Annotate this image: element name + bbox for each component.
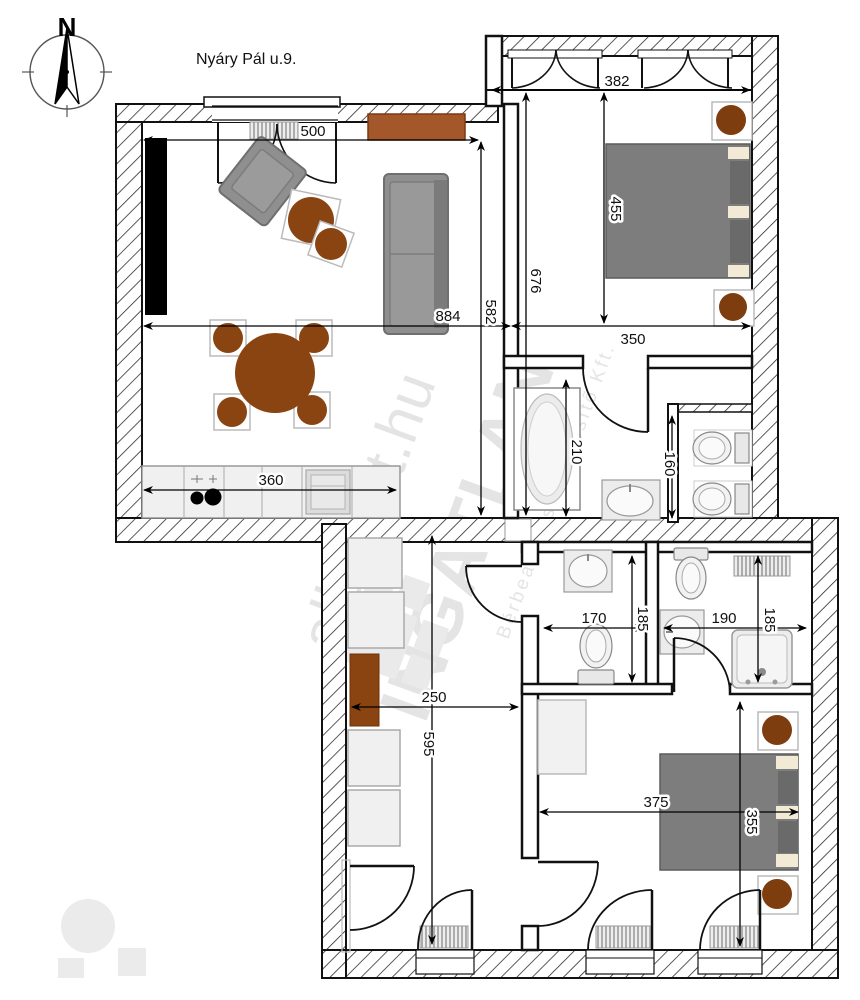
wall-mid-band [116, 518, 838, 542]
bedroom1-window-1 [508, 50, 602, 88]
dim-bedroom1-window: 382 [604, 73, 629, 90]
dim-living-depth: 582 [482, 299, 499, 324]
wall-right-upper [752, 36, 778, 518]
dim-shower-width: 190 [711, 610, 736, 627]
dim-bedroom2-width: 375 [643, 794, 668, 811]
compass-north-label: N [58, 12, 77, 42]
floor-plan-page: alberlet.hu INGATLAN Bérbeadó és Értékes… [0, 0, 860, 1000]
bedroom1 [606, 102, 754, 326]
wall-living-left [116, 104, 142, 530]
cabinet [348, 592, 404, 648]
dim-wc-niche: 160 [661, 451, 678, 476]
radiator-icon [710, 926, 760, 948]
toilet [674, 548, 708, 599]
door-hallway [342, 860, 414, 952]
radiator-icon [250, 122, 298, 139]
radiator-icon [734, 556, 790, 576]
toilet [578, 624, 614, 684]
wc-sink [564, 550, 612, 592]
door-bedroom2 [538, 862, 598, 926]
dim-living-length: 884 [435, 308, 460, 325]
dim-shower-depth: 185 [761, 607, 778, 632]
floor-plan-canvas: alberlet.hu INGATLAN Bérbeadó és Értékes… [0, 0, 860, 1000]
cabinet [348, 790, 400, 846]
toilet [693, 481, 752, 517]
radiator-icon [596, 926, 650, 948]
bed [606, 144, 750, 278]
bedroom1-window-2 [638, 50, 732, 88]
radiator-icon [420, 926, 468, 948]
dining-set [210, 320, 332, 430]
dim-bathtub: 210 [568, 439, 585, 464]
dim-living-window: 500 [300, 123, 325, 140]
dim-bedroom2-depth: 355 [743, 809, 760, 834]
dining-table [235, 333, 315, 413]
balcony-door [586, 890, 654, 974]
cabinet [348, 538, 402, 588]
wardrobe [145, 138, 167, 315]
dim-hallway-length: 595 [420, 731, 437, 756]
dim-wc-depth: 185 [634, 606, 651, 631]
desk [538, 700, 586, 774]
shower-tray [732, 630, 792, 688]
dim-hallway-width: 250 [421, 689, 446, 706]
balcony-door [698, 890, 762, 974]
toilet [693, 430, 752, 466]
sideboard [368, 114, 465, 140]
bathroom-sink [602, 480, 660, 520]
dim-wc-width: 170 [581, 610, 606, 627]
compass: N [22, 12, 112, 117]
cabinet [348, 730, 400, 786]
shower-sink [660, 610, 704, 654]
cabinet-brown [350, 654, 379, 726]
wall-bedroom1-left [486, 36, 502, 106]
side-table [281, 189, 354, 267]
dim-right-wing-depth: 676 [527, 268, 544, 293]
page-title: Nyáry Pál u.9. [196, 51, 296, 68]
dim-bedroom1-inner: 350 [620, 331, 645, 348]
balcony-door [416, 890, 474, 974]
watermark-logo-corner [58, 899, 146, 978]
wall-right-lower [812, 518, 838, 978]
dim-bedroom1-width: 455 [607, 196, 624, 221]
dim-kitchen-counter: 360 [258, 472, 283, 489]
